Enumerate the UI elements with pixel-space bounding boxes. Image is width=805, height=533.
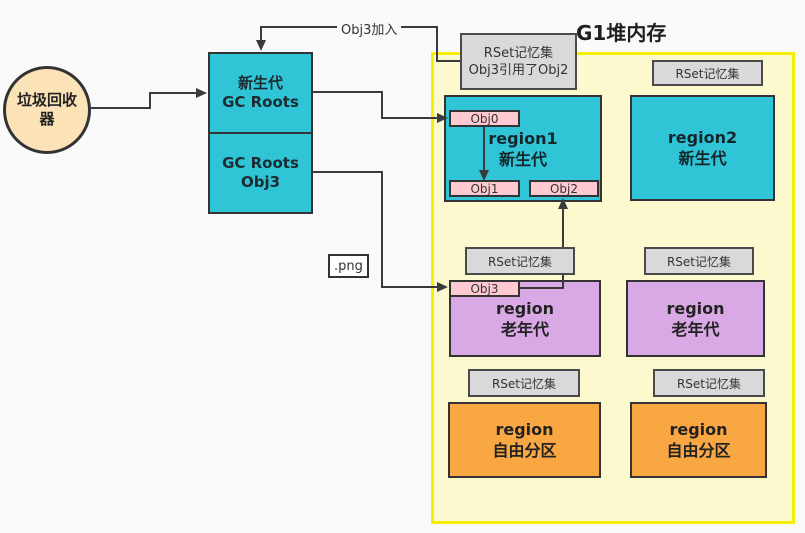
region2-label-line1: region2: [668, 127, 737, 148]
arrow-gcroots-to-obj0: [313, 92, 448, 123]
rset-box-old-left: RSet记忆集: [465, 247, 575, 275]
region-free-left-line2: 自由分区: [492, 440, 556, 461]
rset-note-box: RSet记忆集 Obj3引用了Obj2: [460, 33, 577, 90]
g1-gc-diagram: G1堆内存 region1 新生代 region2 新生代 region 老年代…: [0, 0, 805, 533]
png-tag-box: .png: [328, 254, 369, 278]
region-free-right-line1: region: [669, 419, 727, 440]
obj3-join-arrow-label: Obj3加入: [337, 19, 401, 38]
arrow-collector-to-gcroots: [91, 88, 207, 108]
gc-roots-young-section: 新生代 GC Roots: [210, 54, 311, 134]
region-old-left-line1: region: [496, 298, 554, 319]
region-old-right: region 老年代: [626, 280, 765, 357]
rset-label: RSet记忆集: [677, 375, 741, 392]
obj3-box: Obj3: [449, 280, 520, 297]
gc-roots-top-line2: GC Roots: [222, 93, 299, 112]
rset-label: RSet记忆集: [488, 253, 552, 270]
collector-label-line2: 器: [39, 110, 54, 129]
region-free-right: region 自由分区: [630, 402, 767, 478]
gc-roots-node: 新生代 GC Roots GC Roots Obj3: [208, 52, 313, 214]
region2-young: region2 新生代: [630, 95, 775, 201]
rset-label: RSet记忆集: [492, 375, 556, 392]
gc-roots-bottom-line2: Obj3: [241, 173, 280, 192]
region1-label-line2: 新生代: [499, 149, 547, 170]
region-free-left-line1: region: [495, 419, 553, 440]
rset-box-region2: RSet记忆集: [652, 60, 763, 86]
gc-roots-obj3-section: GC Roots Obj3: [210, 134, 311, 212]
region-free-left: region 自由分区: [448, 402, 601, 478]
rset-box-old-right: RSet记忆集: [644, 247, 754, 275]
obj2-box: Obj2: [529, 180, 599, 197]
rset-note-line2: Obj3引用了Obj2: [469, 62, 569, 79]
garbage-collector-node: 垃圾回收 器: [3, 66, 91, 154]
rset-label: RSet记忆集: [667, 253, 731, 270]
rset-box-free-left: RSet记忆集: [468, 369, 580, 397]
rset-label: RSet记忆集: [675, 65, 739, 82]
gc-roots-top-line1: 新生代: [238, 74, 283, 93]
rset-note-line1: RSet记忆集: [484, 45, 553, 62]
region-old-left-line2: 老年代: [501, 319, 549, 340]
obj0-box: Obj0: [449, 110, 520, 127]
obj1-box: Obj1: [449, 180, 520, 197]
region-free-right-line2: 自由分区: [666, 440, 730, 461]
gc-roots-bottom-line1: GC Roots: [222, 154, 299, 173]
region2-label-line2: 新生代: [678, 148, 726, 169]
region-old-right-line1: region: [666, 298, 724, 319]
region1-label-line1: region1: [488, 128, 557, 149]
region-old-right-line2: 老年代: [671, 319, 719, 340]
heap-title: G1堆内存: [576, 17, 666, 46]
rset-box-free-right: RSet记忆集: [653, 369, 765, 397]
collector-label-line1: 垃圾回收: [17, 91, 77, 110]
